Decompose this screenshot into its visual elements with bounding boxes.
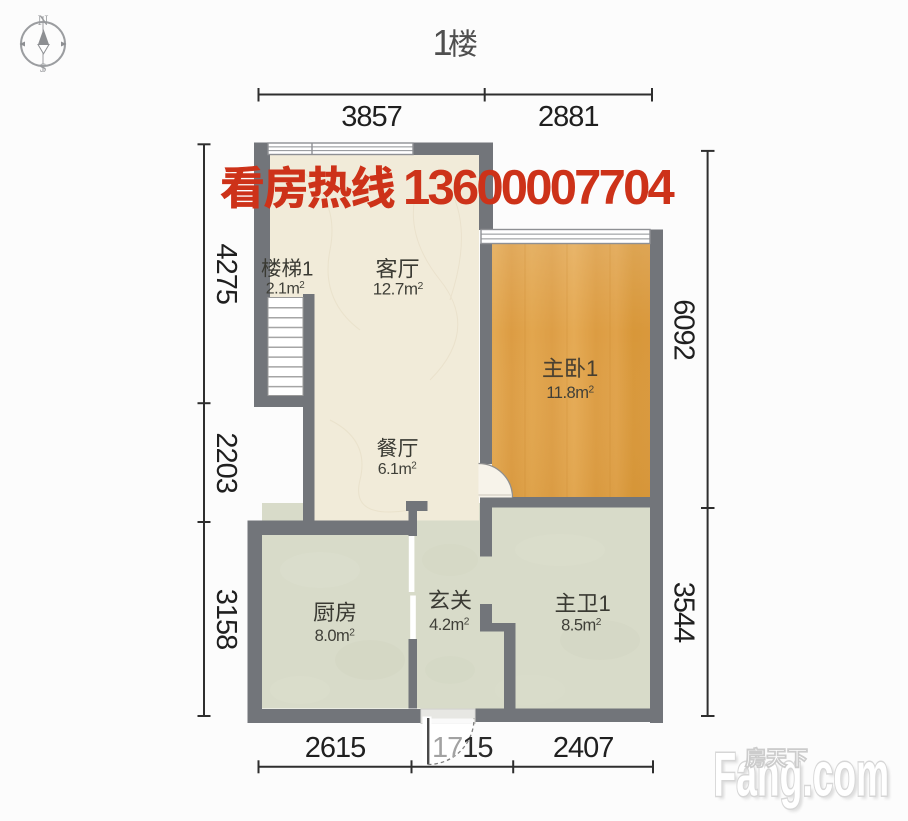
svg-text:1: 1	[599, 591, 611, 616]
svg-text:N: N	[38, 13, 49, 29]
svg-text:8.5m2: 8.5m2	[561, 617, 602, 635]
svg-text:S: S	[39, 60, 46, 75]
svg-text:1715: 1715	[432, 732, 493, 764]
svg-text:2.1m2: 2.1m2	[266, 280, 305, 297]
svg-text:4275: 4275	[210, 243, 242, 304]
svg-text:2881: 2881	[538, 101, 599, 133]
svg-text:1: 1	[586, 356, 598, 381]
svg-text:3857: 3857	[341, 101, 402, 133]
svg-text:3158: 3158	[210, 589, 242, 650]
svg-text:6.1m2: 6.1m2	[378, 461, 417, 478]
svg-text:1: 1	[302, 258, 313, 281]
svg-text:13600007704: 13600007704	[403, 161, 675, 215]
svg-text:11.8m2: 11.8m2	[546, 384, 594, 402]
svg-text:12.7m2: 12.7m2	[373, 280, 424, 299]
svg-text:4.2m2: 4.2m2	[429, 616, 470, 634]
svg-text:2615: 2615	[305, 732, 366, 764]
svg-text:2203: 2203	[210, 432, 242, 493]
svg-text:8.0m2: 8.0m2	[315, 627, 356, 645]
svg-text:6092: 6092	[668, 299, 700, 360]
svg-text:3544: 3544	[668, 582, 700, 643]
svg-text:1: 1	[432, 22, 452, 63]
svg-text:2407: 2407	[553, 732, 614, 764]
